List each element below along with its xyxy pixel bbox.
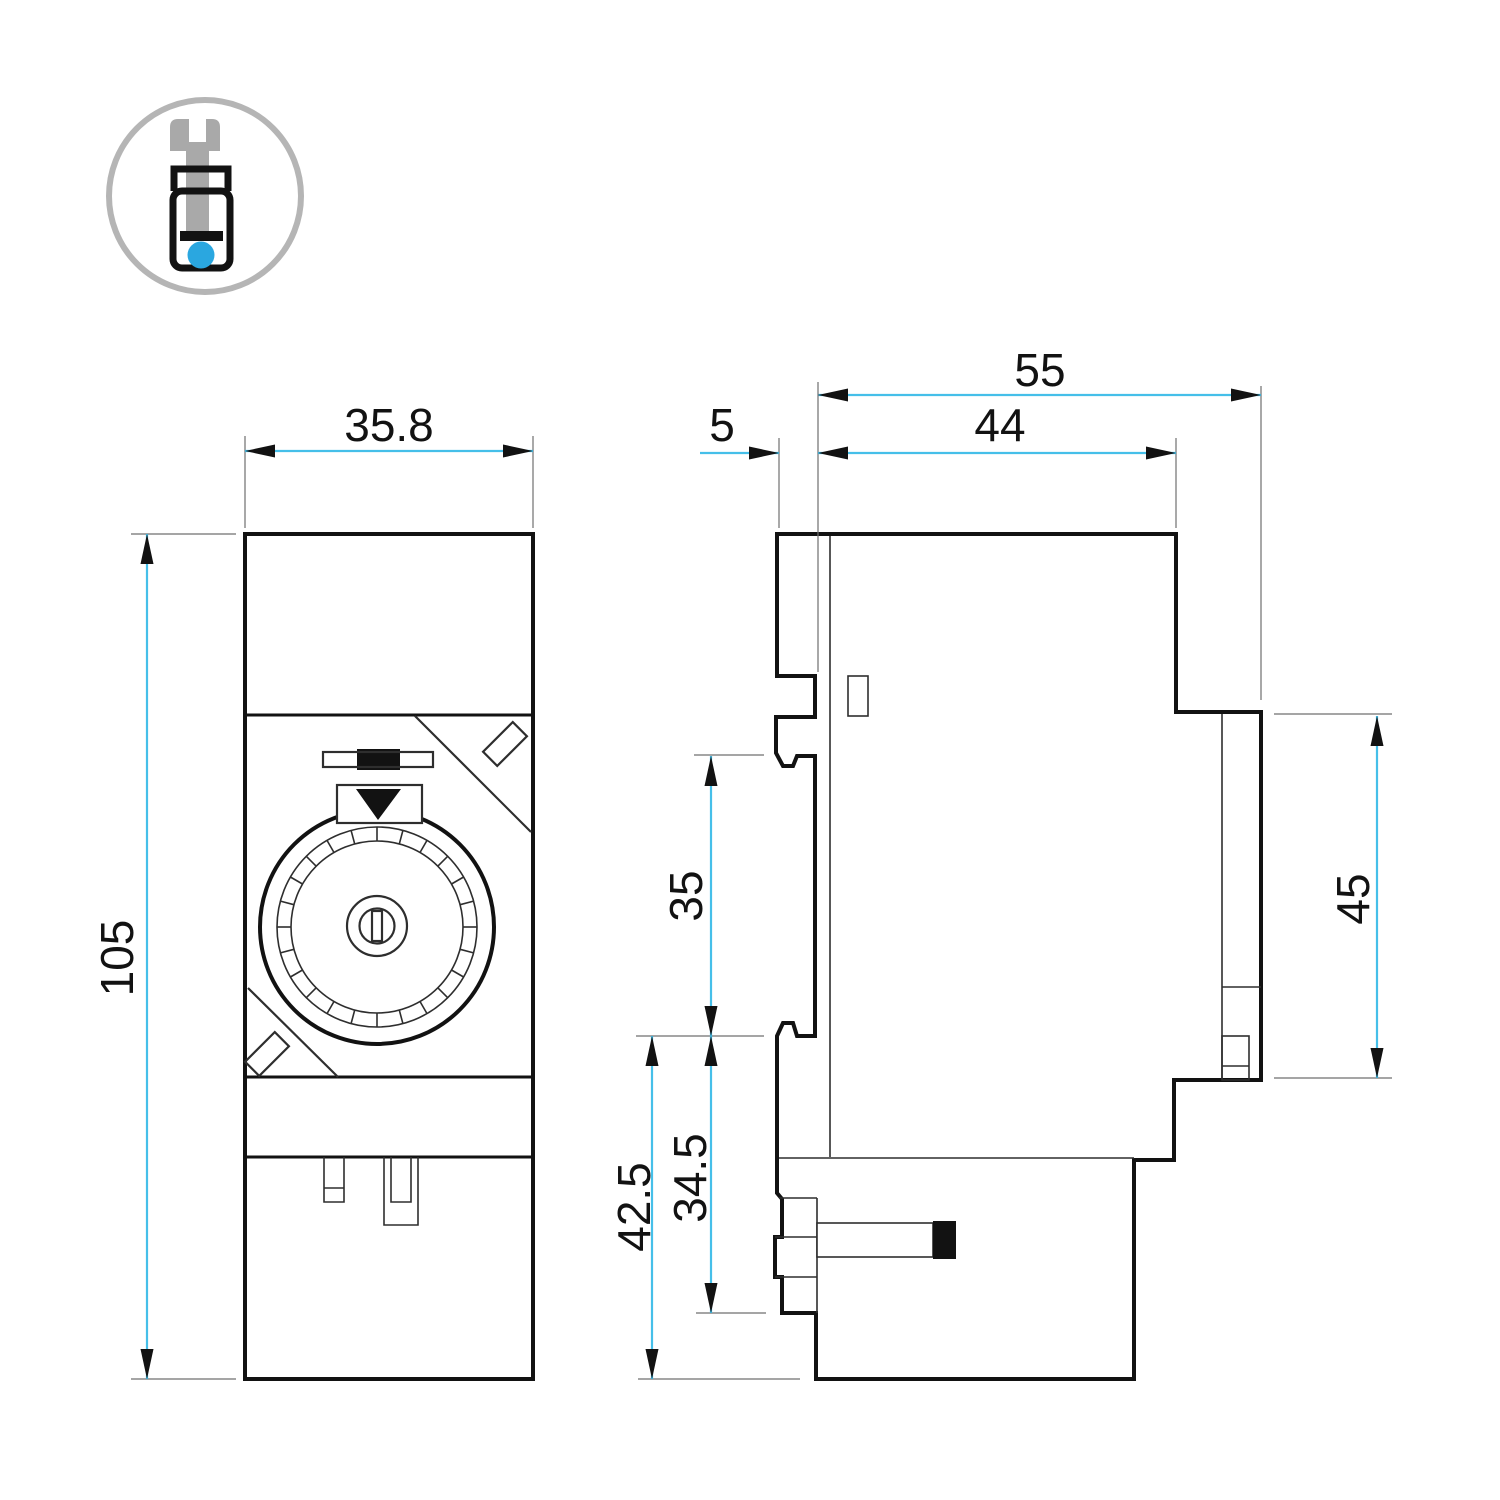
arrow-up-icon — [141, 534, 154, 564]
dial-tick — [327, 1002, 334, 1014]
dim-side-terminal-height: 45 — [1274, 714, 1392, 1078]
arrow-right-icon — [503, 445, 533, 458]
dial-tick — [351, 1010, 355, 1024]
arrow-down-icon — [705, 1283, 718, 1313]
dim-label-lower-total: 42.5 — [608, 1162, 660, 1252]
arrow-down-icon — [141, 1349, 154, 1379]
side-view — [775, 534, 1261, 1379]
dim-label-front-width: 35.8 — [344, 399, 434, 451]
dial-tick — [306, 988, 316, 998]
dial-tick — [290, 970, 302, 977]
rear-terminal-box — [1222, 1036, 1249, 1080]
arrow-right-icon — [1146, 447, 1176, 460]
dial-tick — [452, 877, 464, 884]
seal-diagonal-topright — [415, 716, 531, 832]
screw-terminal-icon — [109, 100, 301, 292]
dim-label-din-clip: 35 — [660, 870, 712, 921]
dial-tick — [280, 949, 294, 953]
dim-label-front-recess: 5 — [709, 399, 735, 451]
dim-side-din-clip: 35 — [636, 755, 764, 1036]
arrow-down-icon — [646, 1349, 659, 1379]
arrow-left-icon — [245, 445, 275, 458]
front-view — [245, 534, 533, 1379]
technical-drawing-page: 35.8 105 55 44 — [0, 0, 1500, 1500]
dim-front-height: 105 — [91, 534, 236, 1379]
dim-label-total-depth: 55 — [1014, 344, 1065, 396]
arrow-down-icon — [1371, 1048, 1384, 1078]
dial-tick — [452, 970, 464, 977]
dim-label-terminal-height: 45 — [1327, 873, 1379, 924]
arrow-up-icon — [705, 1036, 718, 1066]
arrow-down-icon — [705, 1006, 718, 1036]
dim-label-body-depth: 44 — [974, 399, 1025, 451]
dim-side-total-depth: 55 — [818, 344, 1261, 700]
dim-label-front-height: 105 — [91, 920, 143, 997]
dial-tick — [420, 1002, 427, 1014]
arrow-right-icon — [749, 447, 779, 460]
seal-tab-bottomleft — [245, 1032, 289, 1076]
side-latch-window — [848, 676, 868, 716]
dial-tick — [438, 856, 448, 866]
connector-slot-a — [324, 1157, 344, 1202]
arrow-up-icon — [1371, 716, 1384, 746]
dial-key-slot — [372, 911, 382, 941]
dial-tick — [306, 856, 316, 866]
wire-dot-icon — [188, 242, 215, 269]
dimensions: 35.8 105 55 44 — [91, 344, 1392, 1379]
arrow-left-icon — [818, 389, 848, 402]
dial-tick — [399, 830, 403, 844]
dial-tick — [327, 840, 334, 852]
timer-dial — [260, 810, 494, 1044]
dial-tick — [420, 840, 427, 852]
dim-side-front-recess: 5 — [700, 399, 779, 528]
dial-tick — [351, 830, 355, 844]
dial-tick — [460, 901, 474, 905]
dim-front-width: 35.8 — [245, 399, 533, 528]
dial-tick — [280, 901, 294, 905]
arrow-right-icon — [1231, 389, 1261, 402]
dial-tick — [438, 988, 448, 998]
arrow-up-icon — [705, 756, 718, 786]
technical-drawing: 35.8 105 55 44 — [0, 0, 1500, 1500]
terminal-screw-tip — [933, 1221, 956, 1259]
dim-label-lower-section: 34.5 — [664, 1133, 716, 1223]
dial-tick — [399, 1010, 403, 1024]
arrow-up-icon — [646, 1036, 659, 1066]
terminal-screw-shaft — [817, 1223, 933, 1257]
arrow-left-icon — [818, 447, 848, 460]
dial-tick — [460, 949, 474, 953]
seal-tab-topright — [483, 722, 527, 766]
dim-side-body-depth: 44 — [818, 382, 1176, 672]
connector-slot-b — [384, 1157, 418, 1225]
screw-head-icon — [170, 119, 220, 151]
dim-side-lower-section: 34.5 — [664, 1036, 766, 1313]
dial-tick — [290, 877, 302, 884]
